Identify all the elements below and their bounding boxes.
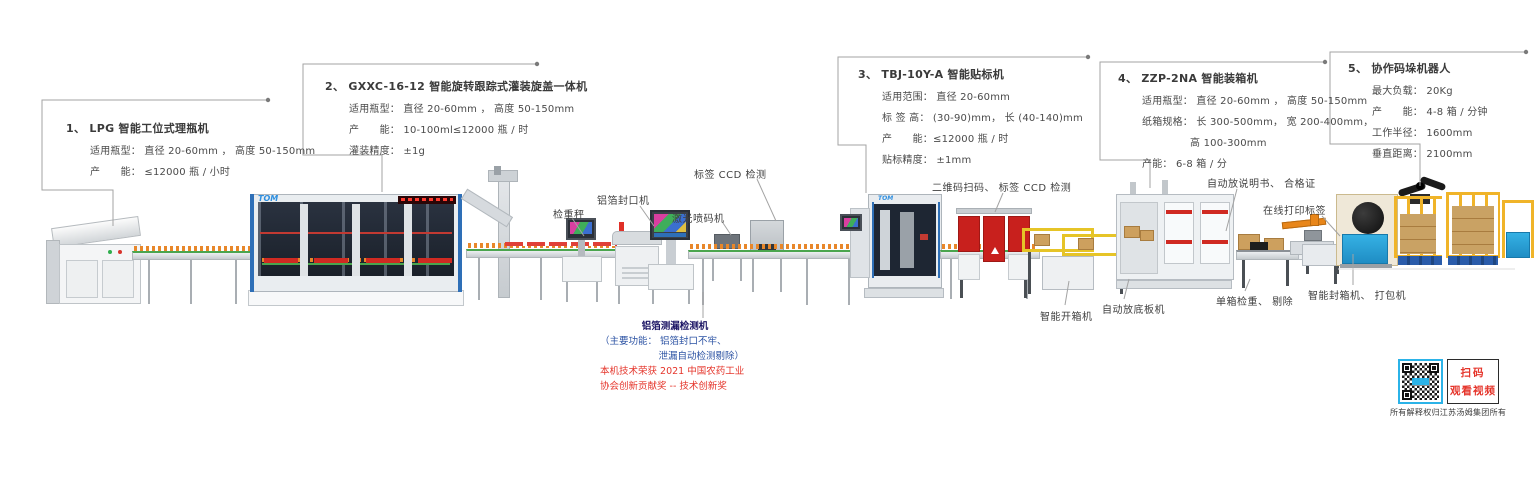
callout-filler-capper: 2、 GXXC-16-12 智能旋转跟踪式灌装旋盖一体机 适用瓶型： 直径 20… (325, 78, 587, 157)
callout-spec: 适用瓶型： 直径 20-60mm ， 高度 50-150mm (90, 142, 315, 157)
callout-labeler: 3、 TBJ-10Y-A 智能贴标机 适用范围： 直径 20-60mm 标 签 … (858, 66, 1083, 166)
label-online-print: 在线打印标签 (1263, 202, 1326, 217)
callout-spec: 产能： 6-8 箱 / 分 (1142, 155, 1373, 170)
callout-title: GXXC-16-12 智能旋转跟踪式灌装旋盖一体机 (348, 80, 587, 93)
label-label-ccd: 标签 CCD 检测 (694, 166, 767, 181)
label-case-sealer: 智能封箱机、 打包机 (1308, 287, 1406, 302)
callout-spec: 贴标精度： ±1mm (882, 151, 1083, 166)
callout-spec: 垂直距离： 2100mm (1372, 145, 1488, 160)
callout-spec: 高 100-300mm (1190, 134, 1373, 149)
callout-spec: 产 能：≤12000 瓶 / 时 (882, 130, 1083, 145)
qr-finder (1429, 363, 1439, 373)
qr-text-box: 扫码 观看视频 (1447, 359, 1499, 404)
callout-spec: 产 能： ≤12000 瓶 / 小时 (90, 163, 315, 178)
production-line-diagram: TOM (0, 0, 1540, 492)
label-bottom-board: 自动放底板机 (1102, 301, 1165, 316)
note-award-line: 本机技术荣获 2021 中国农药工业 (600, 364, 750, 379)
callout-spec: 工作半径： 1600mm (1372, 124, 1488, 139)
label-laser-coder: 激光喷码机 (672, 210, 725, 225)
qr-code (1398, 359, 1443, 404)
callout-number: 5、 (1348, 62, 1367, 75)
callout-title: TBJ-10Y-A 智能贴标机 (881, 68, 1004, 81)
callout-spec: 最大负载： 20Kg (1372, 82, 1488, 97)
label-qrcode-ccd: 二维码扫码、 标签 CCD 检测 (932, 179, 1071, 194)
note-title: 铝箔测漏检测机 (600, 319, 750, 334)
qr-center-logo (1412, 378, 1429, 385)
callout-case-packer: 4、 ZZP-2NA 智能装箱机 适用瓶型： 直径 20-60mm ， 高度 5… (1118, 70, 1373, 170)
callout-spec: 适用瓶型： 直径 20-60mm ， 高度 50-150mm (349, 100, 587, 115)
label-case-opener: 智能开箱机 (1040, 308, 1093, 323)
qr-block: 扫码 观看视频 所有解释权归江苏汤姆集团所有 (1390, 357, 1520, 419)
callout-spec: 标 签 高： (30-90)mm， 长 (40-140)mm (882, 109, 1083, 124)
callout-spec: 适用瓶型： 直径 20-60mm ， 高度 50-150mm (1142, 92, 1373, 107)
note-function-line: （主要功能： 铝箔封口不牢、 (600, 334, 750, 349)
qr-finder-dot (1432, 366, 1436, 370)
note-award-line: 协会创新贡献奖 -- 技术创新奖 (600, 379, 750, 394)
qr-scan-text: 扫码 (1461, 365, 1486, 380)
callout-number: 3、 (858, 68, 877, 81)
label-box-checkweigh: 单箱检重、 剔除 (1216, 293, 1293, 308)
qr-finder-dot (1405, 393, 1409, 397)
callout-spec: 纸箱规格： 长 300-500mm， 宽 200-400mm， (1142, 113, 1373, 128)
qr-finder-dot (1405, 366, 1409, 370)
note-function-line: 泄漏自动检测剔除） (600, 349, 750, 364)
qr-finder (1402, 363, 1412, 373)
callout-title: ZZP-2NA 智能装箱机 (1141, 72, 1258, 85)
label-manual-cert: 自动放说明书、 合格证 (1207, 175, 1316, 190)
callout-spec: 灌装精度： ±1g (349, 142, 587, 157)
callout-title: LPG 智能工位式理瓶机 (89, 122, 209, 135)
callout-title: 协作码垛机器人 (1371, 62, 1450, 75)
callout-spec: 产 能： 10-100ml≤12000 瓶 / 时 (349, 121, 587, 136)
text-layer: 1、 LPG 智能工位式理瓶机 适用瓶型： 直径 20-60mm ， 高度 50… (0, 0, 1540, 492)
qr-watch-text: 观看视频 (1450, 383, 1496, 398)
label-checkweigher: 检重秤 (553, 206, 585, 221)
label-foil-sealer: 铝箔封口机 (597, 192, 650, 207)
qr-caption: 所有解释权归江苏汤姆集团所有 (1390, 407, 1520, 418)
callout-palletizer-robot: 5、 协作码垛机器人 最大负载： 20Kg 产 能： 4-8 箱 / 分钟 工作… (1348, 60, 1488, 160)
callout-spec: 适用范围： 直径 20-60mm (882, 88, 1083, 103)
callout-unscrambler: 1、 LPG 智能工位式理瓶机 适用瓶型： 直径 20-60mm ， 高度 50… (66, 120, 315, 178)
callout-spec: 产 能： 4-8 箱 / 分钟 (1372, 103, 1488, 118)
callout-number: 1、 (66, 122, 85, 135)
qr-finder (1402, 390, 1412, 400)
callout-number: 2、 (325, 80, 344, 93)
leak-detector-note: 铝箔测漏检测机 （主要功能： 铝箔封口不牢、 泄漏自动检测剔除） 本机技术荣获 … (600, 319, 750, 394)
callout-number: 4、 (1118, 72, 1137, 85)
qr-pattern (1402, 363, 1439, 400)
